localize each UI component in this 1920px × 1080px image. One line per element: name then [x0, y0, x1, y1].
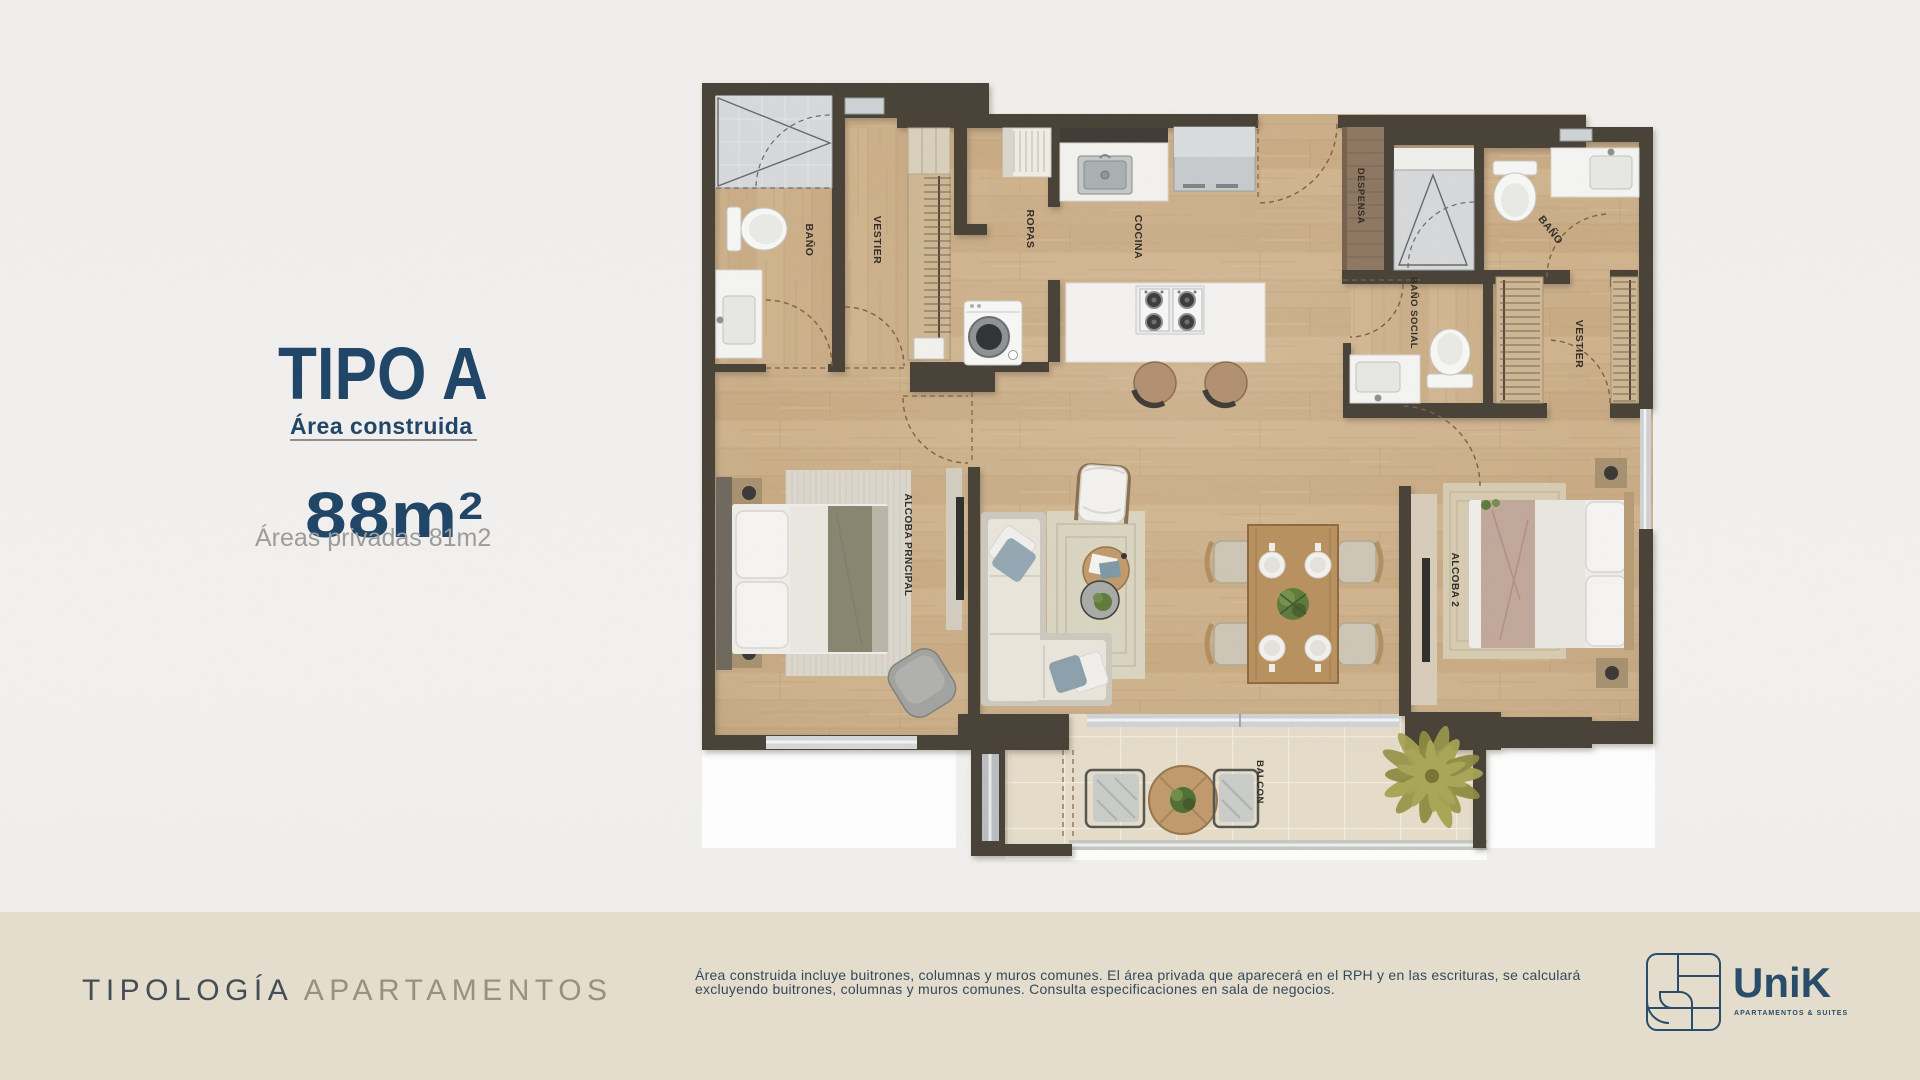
svg-text:APARTAMENTOS & SUITES: APARTAMENTOS & SUITES — [1734, 1010, 1848, 1017]
svg-text:BALCON: BALCON — [1254, 760, 1265, 804]
svg-text:ALCOBA PRNCIPAL: ALCOBA PRNCIPAL — [902, 493, 913, 596]
svg-text:DESPENSA: DESPENSA — [1355, 168, 1366, 224]
svg-text:BAÑO: BAÑO — [803, 224, 816, 257]
svg-text:UniK: UniK — [1733, 959, 1831, 1006]
svg-text:VESTIER: VESTIER — [871, 216, 883, 264]
svg-text:ROPAS: ROPAS — [1024, 209, 1036, 248]
svg-text:ALCOBA 2: ALCOBA 2 — [1449, 553, 1460, 608]
svg-text:BAÑO SOCIAL: BAÑO SOCIAL — [1408, 277, 1419, 349]
svg-text:VESTIER: VESTIER — [1573, 320, 1585, 368]
svg-text:COCINA: COCINA — [1132, 215, 1144, 259]
